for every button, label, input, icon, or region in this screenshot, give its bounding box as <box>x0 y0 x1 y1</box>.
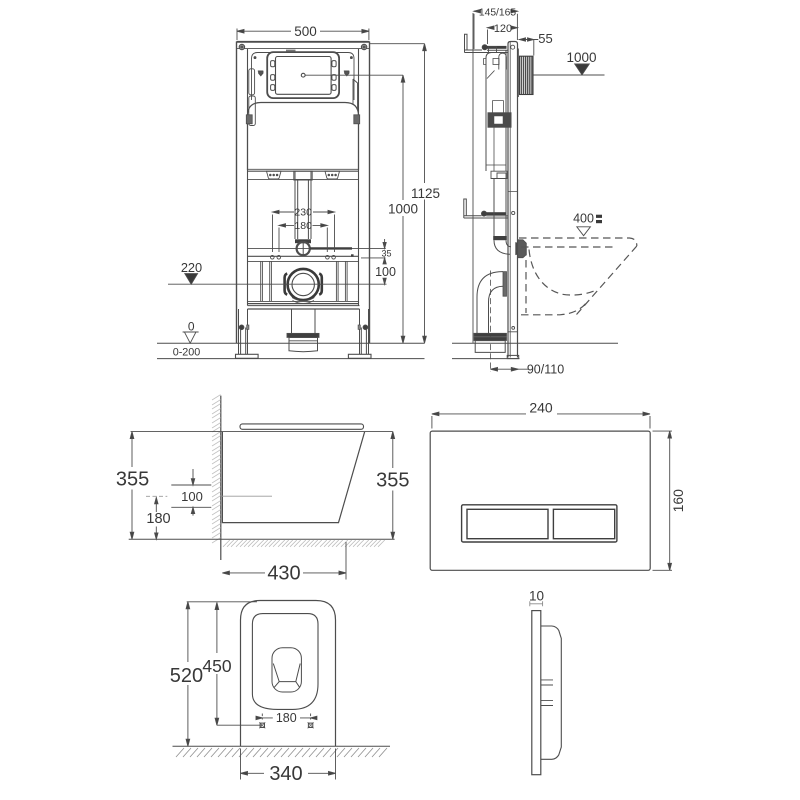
svg-text:180: 180 <box>146 511 170 527</box>
svg-text:0: 0 <box>188 320 195 334</box>
svg-text:160: 160 <box>670 489 686 513</box>
svg-text:430: 430 <box>267 563 300 585</box>
svg-text:120: 120 <box>494 23 512 35</box>
svg-text:10: 10 <box>529 589 544 604</box>
svg-text:500: 500 <box>294 24 317 39</box>
svg-text:55: 55 <box>538 31 552 46</box>
svg-text:100: 100 <box>181 489 203 504</box>
svg-text:35: 35 <box>381 249 391 259</box>
svg-text:180: 180 <box>276 711 297 725</box>
svg-text:180: 180 <box>294 220 312 232</box>
svg-text:520: 520 <box>170 665 203 687</box>
svg-text:400: 400 <box>573 212 594 226</box>
svg-text:145/165: 145/165 <box>479 8 516 19</box>
svg-text:340: 340 <box>269 763 302 785</box>
svg-text:1125: 1125 <box>411 186 440 201</box>
svg-text:1000: 1000 <box>388 201 418 216</box>
svg-text:1000: 1000 <box>566 50 596 65</box>
svg-text:90/110: 90/110 <box>527 362 564 376</box>
svg-text:0-200: 0-200 <box>173 346 201 358</box>
svg-text:230: 230 <box>294 207 312 219</box>
svg-text:450: 450 <box>202 656 231 676</box>
svg-text:355: 355 <box>376 469 409 491</box>
svg-text:355: 355 <box>116 468 149 490</box>
svg-text:240: 240 <box>529 400 553 416</box>
svg-text:220: 220 <box>181 260 202 275</box>
svg-text:100: 100 <box>375 265 396 279</box>
